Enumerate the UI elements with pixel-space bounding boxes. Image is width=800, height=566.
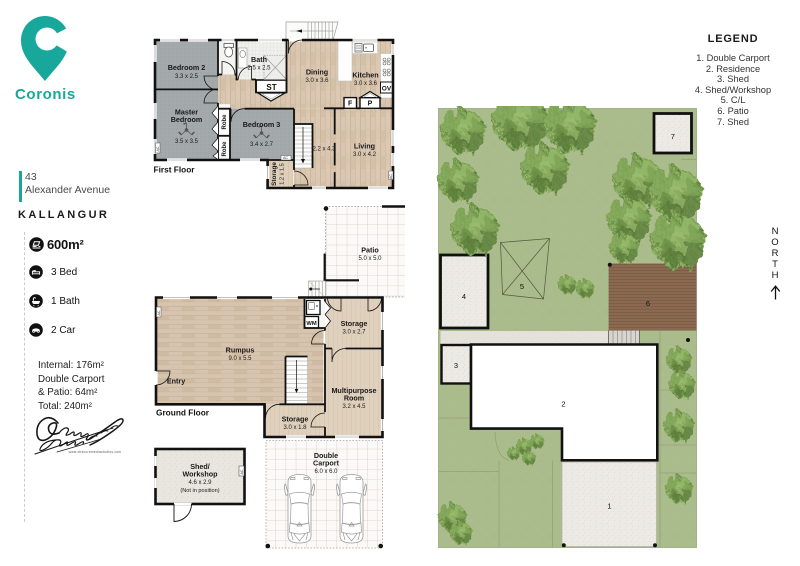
svg-text:3.0 x 4.2: 3.0 x 4.2 xyxy=(353,152,377,158)
svg-text:OV: OV xyxy=(382,86,392,93)
svg-text:1: 1 xyxy=(607,502,611,511)
svg-text:2: 2 xyxy=(561,400,565,409)
svg-text:6: 6 xyxy=(646,299,650,308)
svg-text:Carport: Carport xyxy=(313,459,340,468)
svg-text:AC: AC xyxy=(283,156,288,160)
svg-text:4.6 x 2.9: 4.6 x 2.9 xyxy=(188,480,212,486)
svg-text:www.obscuramediastudios.com: www.obscuramediastudios.com xyxy=(69,450,122,454)
svg-text:First Floor: First Floor xyxy=(154,165,196,175)
svg-text:Robe: Robe xyxy=(222,114,228,130)
svg-text:5.0 x 5.0: 5.0 x 5.0 xyxy=(358,256,382,262)
svg-text:2.2 x 4.3: 2.2 x 4.3 xyxy=(312,147,336,153)
svg-text:Dining: Dining xyxy=(306,68,328,77)
svg-text:Entry: Entry xyxy=(167,377,185,386)
svg-text:P: P xyxy=(368,101,373,108)
svg-text:Bath: Bath xyxy=(251,55,267,64)
svg-text:WM: WM xyxy=(306,321,316,327)
svg-text:Kitchen: Kitchen xyxy=(352,71,378,80)
svg-text:7: 7 xyxy=(671,132,675,141)
svg-text:Workshop: Workshop xyxy=(182,470,218,479)
svg-text:Robe: Robe xyxy=(222,141,228,157)
svg-text:3.0 x 1.8: 3.0 x 1.8 xyxy=(283,425,307,431)
svg-text:Living: Living xyxy=(354,142,375,151)
svg-text:3.0 x 2.7: 3.0 x 2.7 xyxy=(342,330,366,336)
svg-text:Bedroom 3: Bedroom 3 xyxy=(243,120,281,129)
svg-text:Patio: Patio xyxy=(361,246,379,255)
svg-text:3.0 x 3.6: 3.0 x 3.6 xyxy=(354,81,378,87)
svg-text:Storage: Storage xyxy=(282,415,309,424)
svg-text:AC: AC xyxy=(240,469,244,474)
svg-text:1.2 x 1.5: 1.2 x 1.5 xyxy=(280,163,286,184)
svg-text:3.5 x 3.5: 3.5 x 3.5 xyxy=(175,139,199,145)
svg-text:(Not in position): (Not in position) xyxy=(180,488,219,494)
svg-text:9.0 x 5.5: 9.0 x 5.5 xyxy=(228,356,252,362)
svg-text:2.5 x 2.5: 2.5 x 2.5 xyxy=(247,66,271,72)
svg-text:Storage: Storage xyxy=(271,162,278,186)
svg-text:3.0 x 3.6: 3.0 x 3.6 xyxy=(305,78,329,84)
svg-text:6.0 x 6.0: 6.0 x 6.0 xyxy=(314,469,338,475)
svg-text:F: F xyxy=(348,101,353,108)
svg-text:ST: ST xyxy=(266,83,276,92)
svg-text:AC: AC xyxy=(156,146,160,151)
svg-text:3.4 x 2.7: 3.4 x 2.7 xyxy=(250,142,274,148)
svg-text:AC: AC xyxy=(389,174,393,179)
svg-text:3.2 x 4.5: 3.2 x 4.5 xyxy=(342,404,366,410)
svg-text:Rumpus: Rumpus xyxy=(226,346,255,355)
svg-text:Room: Room xyxy=(344,394,364,403)
svg-text:Bedroom 2: Bedroom 2 xyxy=(168,63,206,72)
svg-text:3: 3 xyxy=(454,361,458,370)
svg-text:Ground Floor: Ground Floor xyxy=(156,408,210,418)
svg-text:Bedroom: Bedroom xyxy=(171,115,203,124)
svg-text:Storage: Storage xyxy=(341,319,368,328)
svg-text:4: 4 xyxy=(462,292,466,301)
svg-text:3.3 x 2.5: 3.3 x 2.5 xyxy=(175,74,199,80)
svg-text:AC: AC xyxy=(157,310,161,315)
svg-text:5: 5 xyxy=(520,282,524,291)
